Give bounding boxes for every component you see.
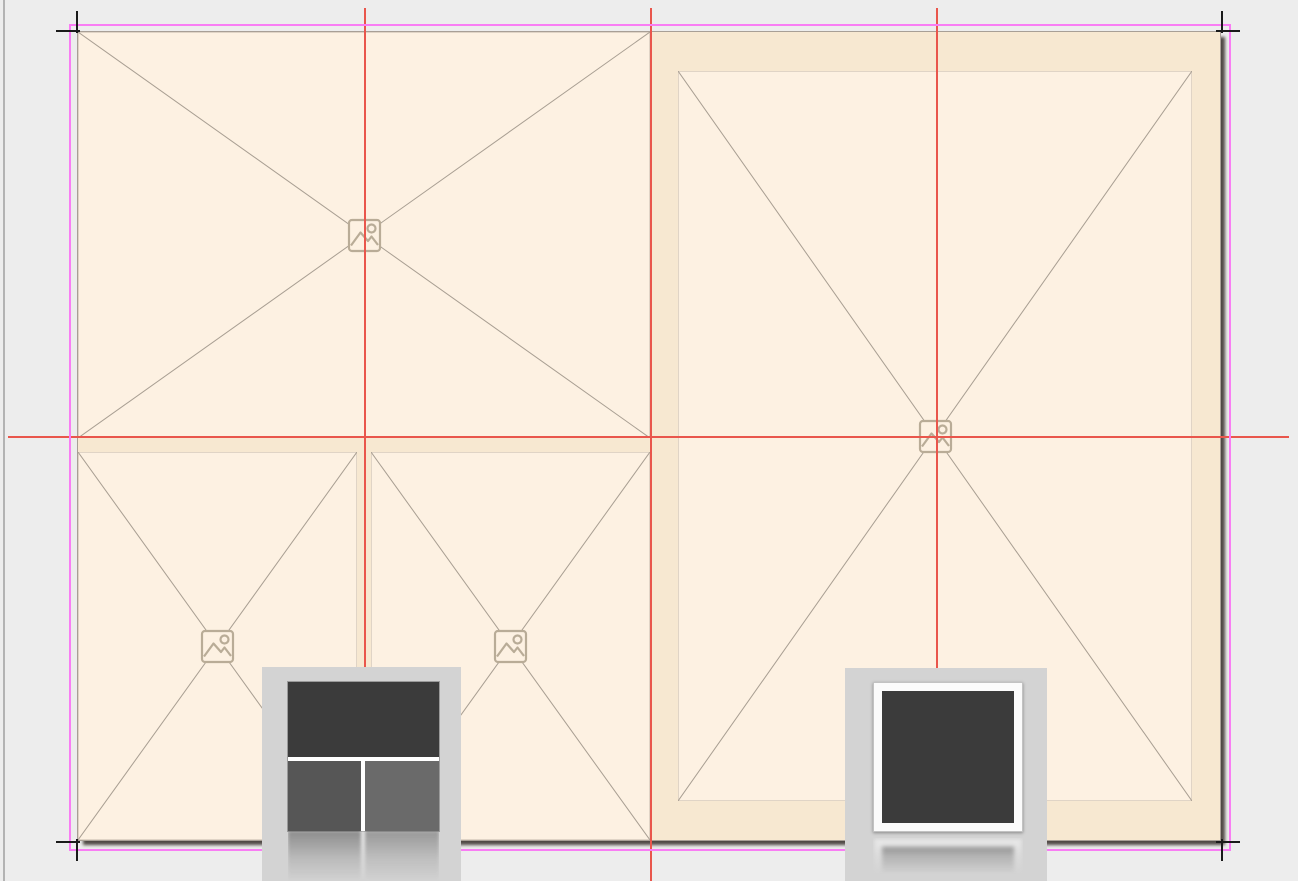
bleed-guide-rect bbox=[69, 24, 1231, 851]
crop-mark-top-right-icon bbox=[1216, 30, 1240, 32]
panel-divider bbox=[3, 0, 5, 881]
workspace-canvas bbox=[0, 0, 1298, 881]
photo-frame-preview bbox=[873, 682, 1023, 832]
thumbnail-framed-photo[interactable] bbox=[845, 668, 1047, 881]
thumbnail-collage-layout[interactable] bbox=[262, 667, 461, 881]
reflection-cell bbox=[288, 831, 361, 881]
crop-mark-bottom-right-icon bbox=[1216, 841, 1240, 843]
photo-area bbox=[882, 691, 1014, 823]
reflection-cell bbox=[365, 831, 439, 881]
collage-cell-top bbox=[288, 682, 439, 757]
collage-cell-bottom-right bbox=[365, 761, 439, 831]
collage-cell-bottom-left bbox=[288, 761, 361, 831]
reflection-cell bbox=[882, 847, 1014, 881]
reflection bbox=[873, 838, 1023, 881]
collage-preview bbox=[288, 682, 439, 831]
crop-mark-bottom-left-icon bbox=[56, 841, 80, 843]
crop-mark-top-left-icon bbox=[56, 30, 80, 32]
reflection bbox=[288, 831, 439, 881]
